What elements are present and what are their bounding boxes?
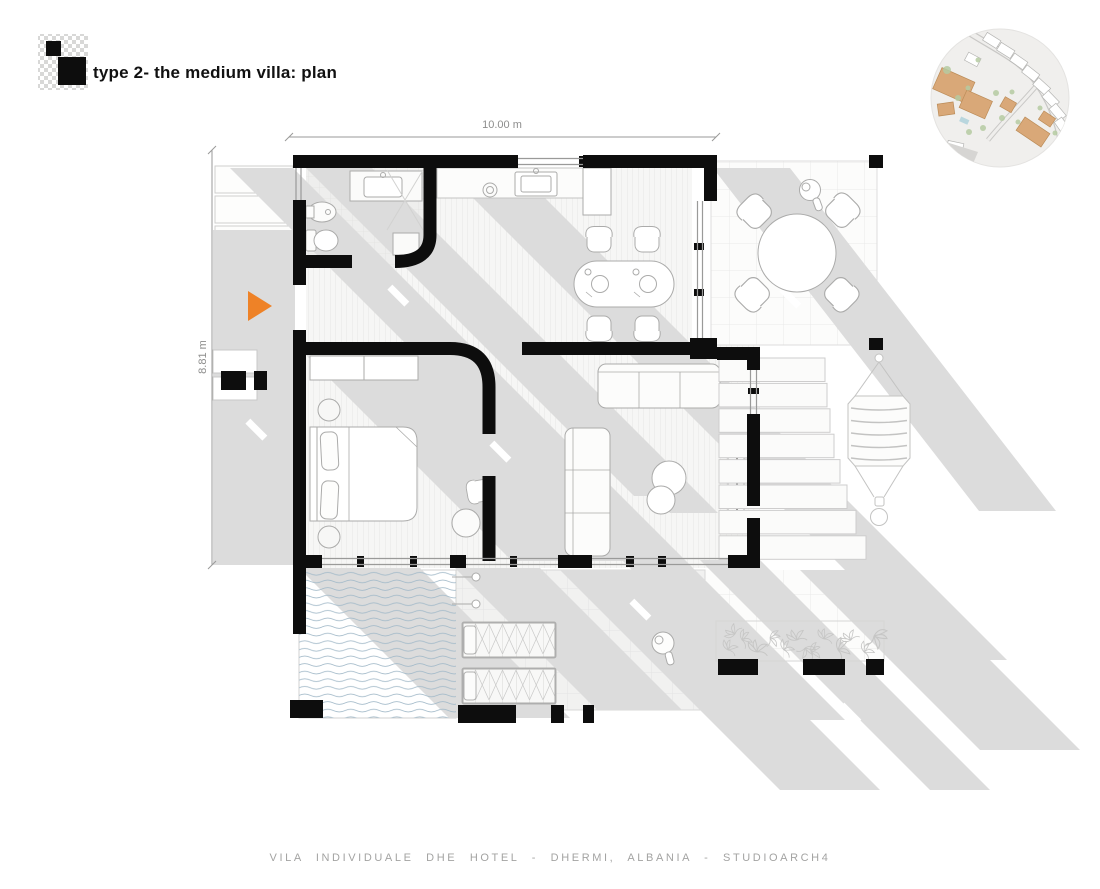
bedroom-table <box>452 509 480 537</box>
toilet <box>306 230 338 251</box>
page-title: type 2- the medium villa: plan <box>93 63 337 83</box>
sofa-chaise <box>565 428 610 556</box>
logo-big-square <box>58 57 86 85</box>
footer-credit: VILA INDIVIDUALE DHE HOTEL - DHERMI, ALB… <box>0 852 1100 864</box>
glass-wall-dining <box>698 201 703 338</box>
logo <box>38 34 88 90</box>
site-plan-thumbnail <box>931 29 1071 167</box>
nightstand <box>318 399 340 421</box>
sofa <box>598 364 720 408</box>
coffee-table <box>647 486 675 514</box>
logo-small-square <box>46 41 61 56</box>
fridge <box>583 168 611 215</box>
floor-plan-canvas <box>0 0 1100 889</box>
sun-lounger <box>462 622 556 658</box>
bathroom-vanity <box>350 171 422 201</box>
window-kitchen <box>518 159 583 165</box>
dimension-height-label: 8.81 m <box>197 327 211 387</box>
dining-table <box>574 261 674 307</box>
dimension-width-label: 10.00 m <box>452 119 552 131</box>
sun-lounger <box>462 668 556 704</box>
drawing-sheet: type 2- the medium villa: plan 10.00 m 8… <box>0 0 1100 889</box>
pool-water <box>299 570 456 718</box>
terrace-table <box>758 214 836 292</box>
nightstand <box>318 526 340 548</box>
bed <box>310 427 417 521</box>
